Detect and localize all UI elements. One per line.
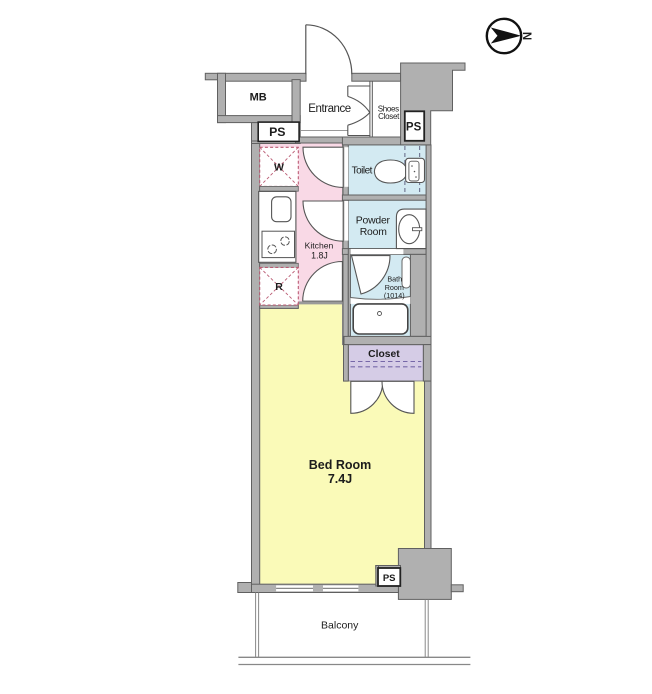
svg-text:N: N <box>520 32 532 40</box>
svg-text:(1014): (1014) <box>384 291 405 300</box>
svg-text:MB: MB <box>250 92 267 104</box>
svg-text:1.8J: 1.8J <box>311 251 328 261</box>
svg-text:Balcony: Balcony <box>321 619 359 631</box>
svg-text:W: W <box>274 162 284 174</box>
svg-text:7.4J: 7.4J <box>328 472 352 486</box>
svg-text:PS: PS <box>383 573 396 584</box>
svg-text:Closet: Closet <box>368 349 400 360</box>
svg-text:R: R <box>275 281 283 293</box>
svg-text:Powder: Powder <box>356 215 391 226</box>
svg-text:Room: Room <box>360 227 387 238</box>
svg-text:Bed Room: Bed Room <box>309 458 372 472</box>
svg-text:Entrance: Entrance <box>308 103 350 115</box>
svg-text:PS: PS <box>406 122 422 134</box>
svg-text:PS: PS <box>269 125 285 139</box>
svg-text:Kitchen: Kitchen <box>305 241 334 251</box>
svg-text:Toilet: Toilet <box>352 166 373 177</box>
svg-text:Closet: Closet <box>378 112 400 121</box>
